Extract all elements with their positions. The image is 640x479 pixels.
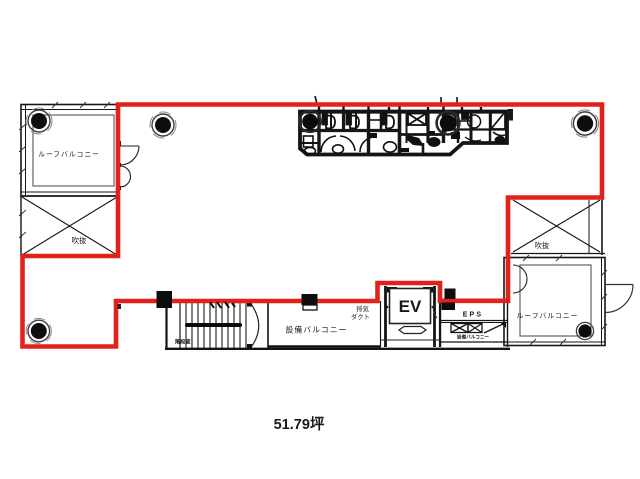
svg-text:EPS: EPS	[463, 312, 484, 319]
svg-text:吹抜: 吹抜	[535, 241, 549, 250]
svg-text:設備バルコニー: 設備バルコニー	[457, 334, 489, 341]
svg-text:吹抜: 吹抜	[72, 236, 87, 245]
svg-text:51.79坪: 51.79坪	[274, 416, 325, 433]
svg-text:階段室: 階段室	[175, 338, 191, 346]
svg-text:ルーフバルコニー: ルーフバルコニー	[517, 312, 579, 320]
svg-text:ルーフバルコニー: ルーフバルコニー	[38, 151, 100, 159]
svg-text:ダクト: ダクト	[351, 312, 370, 321]
svg-text:EV: EV	[399, 297, 422, 316]
svg-text:設備バルコニー: 設備バルコニー	[285, 325, 347, 335]
svg-text:排気: 排気	[356, 304, 369, 313]
